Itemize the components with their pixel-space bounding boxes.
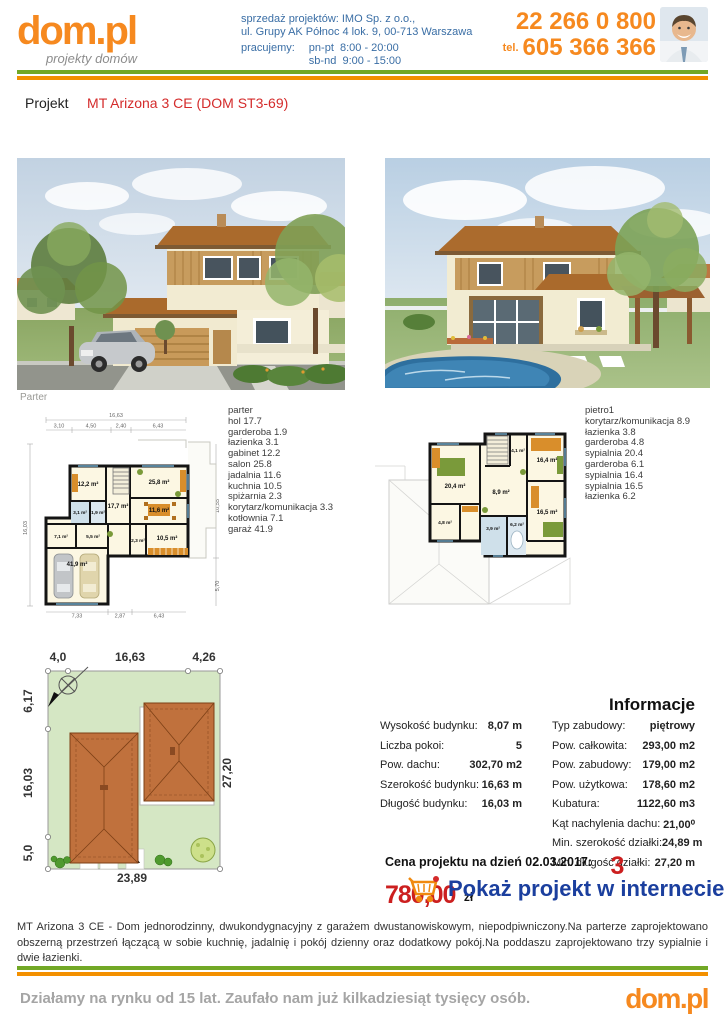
- parter-room-list: parter hol 17.7 garderoba 1.9 łazienka 3…: [228, 406, 358, 536]
- info-table-left: Wysokość budynku:8,07 m Liczba pokoi:5 P…: [380, 720, 522, 818]
- spec-row: Typ zabudowy:piętrowy: [552, 720, 695, 740]
- dim-parter-top-3: 2,40: [116, 424, 127, 430]
- room-item: garaż 41.9: [228, 525, 358, 536]
- spec-row: Szerokość budynku:16,63 m: [380, 779, 522, 799]
- site-dim-left-top: 6,17: [21, 689, 35, 713]
- label-lazienka-parter: 3,1 m²: [73, 510, 87, 516]
- floorplan-pietro-art: 20,4 m² 4,8 m² 8,9 m² 4,1 m² 16,4 m² 16,…: [375, 406, 580, 620]
- project-label: Projekt: [25, 95, 69, 111]
- hours-label: pracujemy:: [241, 42, 295, 68]
- render-front-image: [17, 158, 345, 390]
- site-dim-top-right: 4,26: [192, 650, 216, 664]
- pietro-room-list: pietro1 korytarz/komunikacja 8.9 łazienk…: [585, 406, 715, 503]
- spec-row: Pow. użytkowa:178,60 m2: [552, 779, 695, 799]
- spec-row: Pow. dachu:302,70 m2: [380, 759, 522, 779]
- consultant-photo-art: [660, 7, 708, 62]
- info-heading: Informacje: [555, 695, 695, 715]
- label-kotlownia: 7,1 m²: [54, 534, 68, 540]
- dim-parter-right-bottom: 5,70: [215, 581, 221, 592]
- label-lazienka-2: 6,2 m²: [510, 522, 524, 528]
- room-item: hol 17.7: [228, 417, 358, 428]
- divider-orange: [17, 76, 708, 80]
- footer-logo: dom.pl: [625, 983, 708, 1015]
- dim-parter-top-4: 6,43: [153, 424, 164, 430]
- label-wc: 1,9 m²: [91, 510, 105, 516]
- spec-row: Wysokość budynku:8,07 m: [380, 720, 522, 740]
- label-gabinet: 12,2 m²: [78, 481, 99, 488]
- site-dim-top-left: 4,0: [50, 650, 67, 664]
- cart-icon: [408, 874, 440, 904]
- dim-parter-left: 16,03: [23, 521, 29, 535]
- site-logo[interactable]: dom.pl projekty domów: [17, 12, 137, 66]
- show-project-label: Pokaż projekt w internecie: [448, 876, 724, 902]
- label-korytarz-pietro: 8,9 m²: [492, 489, 509, 496]
- label-sypialnia-3: 16,5 m²: [537, 509, 558, 516]
- floorplan-pietro: 20,4 m² 4,8 m² 8,9 m² 4,1 m² 16,4 m² 16,…: [375, 406, 580, 620]
- label-salon: 25,8 m²: [149, 479, 170, 486]
- site-logo-tagline: projekty domów: [17, 51, 137, 66]
- site-logo-text: dom.pl: [17, 12, 137, 50]
- label-hol: 17,7 m²: [108, 503, 129, 510]
- phone-prefix: tel.: [503, 42, 519, 54]
- site-dim-top-center: 16,63: [115, 650, 145, 664]
- room-item: sypialnia 16.4: [585, 471, 715, 482]
- render-back-image: [385, 158, 710, 388]
- room-item: łazienka 6.2: [585, 492, 715, 503]
- consultant-photo: [660, 7, 708, 62]
- label-jadalnia: 11,6 m²: [149, 507, 169, 514]
- dim-parter-top-1: 3,10: [54, 424, 65, 430]
- project-title-row: Projekt MT Arizona 3 CE (DOM ST3-69): [25, 95, 288, 113]
- seller-info: sprzedaż projektów: IMO Sp. z o.o., ul. …: [241, 13, 481, 68]
- site-dim-left-center: 16,03: [21, 768, 35, 798]
- render-front-art: [17, 158, 345, 390]
- floorplan-parter-art: 16,63 3,10 4,50 2,40 6,43 16,03 10,55 5,…: [18, 406, 223, 620]
- dim-parter-top-2: 4,50: [86, 424, 97, 430]
- spec-row: Pow. zabudowy:179,00 m2: [552, 759, 695, 779]
- label-kuchnia: 10,5 m²: [157, 535, 178, 542]
- phone-mobile[interactable]: tel.605 366 366: [460, 36, 656, 60]
- site-dim-left-bottom: 5,0: [21, 844, 35, 861]
- spec-row: Pow. całkowita:293,00 m2: [552, 740, 695, 760]
- site-plan: 4,0 16,63 4,26 6,17 16,03 5,0 27,20 23,8…: [20, 645, 240, 885]
- label-spizarnia: 2,3 m²: [131, 538, 145, 544]
- label-lazienka-1: 3,9 m²: [486, 526, 500, 532]
- dim-parter-bottom-1: 7,33: [72, 614, 83, 620]
- site-dim-right: 27,20: [220, 758, 234, 788]
- dim-parter-bottom-3: 6,43: [154, 614, 165, 620]
- label-garderoba-2: 4,1 m²: [511, 448, 525, 454]
- project-title: MT Arizona 3 CE (DOM ST3-69): [87, 95, 288, 111]
- render-front-caption: Parter: [20, 392, 47, 403]
- phone-block: 22 266 0 800 tel.605 366 366: [460, 10, 656, 60]
- project-description: MT Arizona 3 CE - Dom jednorodzinny, dwu…: [17, 920, 708, 967]
- dim-parter-bottom-2: 2,87: [115, 614, 126, 620]
- divider-green-bottom: [17, 966, 708, 970]
- label-garderoba-1: 4,8 m²: [438, 520, 452, 526]
- spec-row: Kubatura:1122,60 m3: [552, 798, 695, 818]
- spec-row: Liczba pokoi:5: [380, 740, 522, 760]
- render-back-art: [385, 158, 710, 388]
- spec-row: Kąt nachylenia dachu:21,00⁰: [552, 818, 695, 838]
- page: dom.pl projekty domów sprzedaż projektów…: [0, 0, 725, 1024]
- divider-orange-bottom: [17, 972, 708, 976]
- phone-main[interactable]: 22 266 0 800: [460, 10, 656, 34]
- site-plan-art: 4,0 16,63 4,26 6,17 16,03 5,0 27,20 23,8…: [20, 645, 240, 885]
- spec-row: Długość budynku:16,03 m: [380, 798, 522, 818]
- seller-company: sprzedaż projektów: IMO Sp. z o.o.,: [241, 13, 481, 26]
- label-sypialnia-1: 20,4 m²: [445, 483, 466, 490]
- show-project-button[interactable]: Pokaż projekt w internecie: [408, 874, 724, 904]
- floorplan-parter: 16,63 3,10 4,50 2,40 6,43 16,03 10,55 5,…: [18, 406, 223, 620]
- hours-weekend: sb-nd 9:00 - 15:00: [309, 55, 401, 68]
- divider-green: [17, 70, 708, 74]
- label-sypialnia-2: 16,4 m²: [537, 457, 558, 464]
- price-label: Cena projektu na dzień 02.03.2017:: [385, 855, 592, 869]
- label-garaz: 41,9 m²: [67, 561, 88, 568]
- room-item: jadalnia 11.6: [228, 471, 358, 482]
- footer-tagline: Działamy na rynku od 15 lat. Zaufało nam…: [20, 990, 530, 1007]
- room-item: korytarz/komunikacja 8.9: [585, 417, 715, 428]
- dim-parter-top-total: 16,63: [109, 413, 123, 419]
- site-dim-bottom: 23,89: [117, 871, 147, 885]
- seller-address: ul. Grupy AK Północ 4 lok. 9, 00-713 War…: [241, 26, 481, 39]
- hours-weekdays: pn-pt 8:00 - 20:00: [309, 42, 401, 55]
- label-korytarz-parter: 5,5 m²: [86, 534, 100, 540]
